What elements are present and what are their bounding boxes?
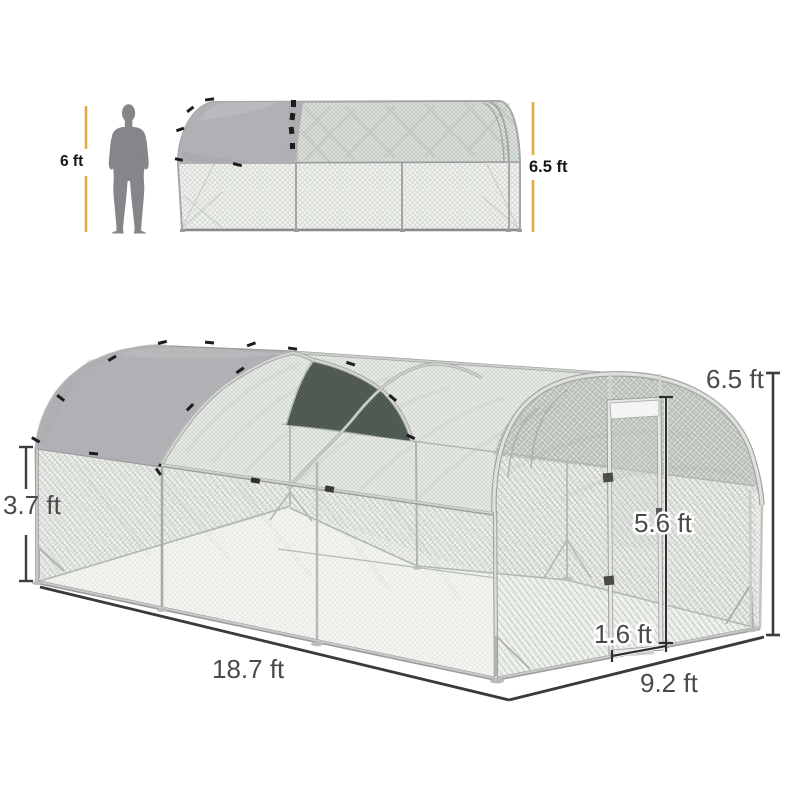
svg-text:18.7 ft: 18.7 ft xyxy=(212,654,285,684)
svg-text:1.6 ft: 1.6 ft xyxy=(594,619,653,649)
svg-text:5.6 ft: 5.6 ft xyxy=(634,508,693,538)
svg-text:6.5 ft: 6.5 ft xyxy=(529,158,568,176)
svg-text:6 ft: 6 ft xyxy=(60,153,83,170)
svg-text:6.5 ft: 6.5 ft xyxy=(706,364,765,394)
svg-text:9.2 ft: 9.2 ft xyxy=(640,668,699,698)
svg-text:3.7 ft: 3.7 ft xyxy=(3,490,62,520)
